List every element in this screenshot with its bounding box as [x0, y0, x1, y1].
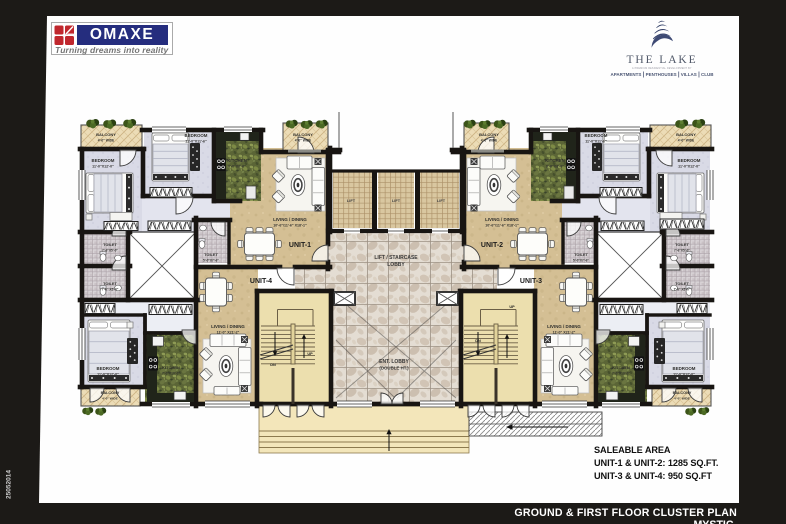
svg-text:LIFT: LIFT: [392, 198, 401, 203]
svg-text:8'-0"X8'-6": 8'-0"X8'-6": [546, 164, 564, 168]
svg-text:KITCHEN: KITCHEN: [227, 158, 247, 163]
svg-text:DN: DN: [475, 339, 481, 343]
svg-text:LIFT: LIFT: [437, 198, 446, 203]
svg-text:UNIT-3: UNIT-3: [520, 278, 542, 285]
svg-text:4'-0" WIDE: 4'-0" WIDE: [295, 138, 312, 142]
svg-text:BALCONY: BALCONY: [673, 391, 692, 395]
svg-text:LOBBY: LOBBY: [387, 262, 405, 268]
svg-text:LIFT / STAIRCASE: LIFT / STAIRCASE: [374, 255, 418, 261]
svg-text:KITCHEN: KITCHEN: [612, 365, 630, 370]
svg-text:BALCONY: BALCONY: [676, 132, 696, 137]
svg-text:4'-0" WIDE: 4'-0" WIDE: [98, 138, 115, 142]
svg-text:7'-0"X10'-0": 7'-0"X10'-0": [612, 371, 631, 375]
svg-text:7'-6"X5'-0": 7'-6"X5'-0": [674, 248, 690, 252]
svg-text:11'-0"X11'-6": 11'-0"X11'-6": [585, 139, 607, 143]
svg-text:KITCHEN: KITCHEN: [545, 158, 565, 163]
svg-text:(DOUBLE HT.): (DOUBLE HT.): [379, 366, 409, 371]
svg-text:4'-0" WIDE: 4'-0" WIDE: [102, 396, 118, 400]
svg-text:TOILET: TOILET: [103, 281, 117, 286]
svg-text:4'-0" WIDE: 4'-0" WIDE: [674, 396, 690, 400]
svg-text:KITCHEN: KITCHEN: [162, 365, 180, 370]
svg-text:7'-0"X10'-0": 7'-0"X10'-0": [162, 371, 181, 375]
svg-text:UP: UP: [509, 305, 515, 309]
svg-text:TOILET: TOILET: [204, 252, 218, 257]
svg-text:11'-0" X21'-2": 11'-0" X21'-2": [217, 330, 240, 334]
svg-text:LIFT: LIFT: [347, 198, 356, 203]
svg-text:11'-0"X12'-0": 11'-0"X12'-0": [97, 372, 119, 376]
svg-text:BEDROOM: BEDROOM: [97, 366, 120, 371]
svg-text:11'-0"X12'-0": 11'-0"X12'-0": [92, 164, 114, 168]
svg-text:BALCONY: BALCONY: [293, 132, 313, 137]
svg-text:TOILET: TOILET: [103, 242, 117, 247]
svg-text:BALCONY: BALCONY: [101, 391, 120, 395]
svg-text:LIVING / DINING: LIVING / DINING: [273, 217, 307, 222]
svg-text:UNIT-4: UNIT-4: [250, 278, 272, 285]
svg-text:DN: DN: [270, 363, 276, 367]
svg-text:TOILET: TOILET: [675, 281, 689, 286]
svg-text:4'-0" WIDE: 4'-0" WIDE: [678, 138, 695, 142]
svg-text:7'-6" X5'-0": 7'-6" X5'-0": [674, 287, 691, 291]
svg-text:5'-0"X7'-6": 5'-0"X7'-6": [203, 258, 219, 262]
svg-text:10'-6"/11'-6" X18'-1": 10'-6"/11'-6" X18'-1": [273, 223, 307, 227]
svg-text:11'-0"X11'-6": 11'-0"X11'-6": [185, 139, 207, 143]
svg-text:LIVING / DINING: LIVING / DINING: [485, 217, 519, 222]
svg-text:11'-0"X12'-0": 11'-0"X12'-0": [673, 372, 695, 376]
svg-text:BEDROOM: BEDROOM: [185, 133, 208, 138]
svg-text:11'-0"X12'-0": 11'-0"X12'-0": [678, 164, 700, 168]
svg-text:BEDROOM: BEDROOM: [673, 366, 696, 371]
svg-text:4'-0" WIDE: 4'-0" WIDE: [481, 138, 498, 142]
svg-text:UNIT-1: UNIT-1: [289, 242, 311, 249]
svg-text:BALCONY: BALCONY: [96, 132, 116, 137]
svg-text:LIVING / DINING: LIVING / DINING: [547, 324, 581, 329]
svg-text:ENT. LOBBY: ENT. LOBBY: [379, 359, 409, 365]
svg-text:8'-0"X8'-6": 8'-0"X8'-6": [228, 164, 246, 168]
svg-text:7'-6"X5'-0": 7'-6"X5'-0": [102, 248, 118, 252]
svg-text:LIVING / DINING: LIVING / DINING: [211, 324, 245, 329]
svg-text:TOILET: TOILET: [574, 252, 588, 257]
svg-text:UNIT-2: UNIT-2: [481, 242, 503, 249]
svg-text:UP: UP: [307, 352, 313, 356]
svg-text:10'-6"/11'-6" X18'-1": 10'-6"/11'-6" X18'-1": [485, 223, 519, 227]
svg-text:TOILET: TOILET: [675, 242, 689, 247]
svg-text:BALCONY: BALCONY: [479, 132, 499, 137]
svg-text:BEDROOM: BEDROOM: [92, 158, 115, 163]
svg-text:BEDROOM: BEDROOM: [678, 158, 701, 163]
svg-text:BEDROOM: BEDROOM: [585, 133, 608, 138]
svg-text:11'-0" X21'-2": 11'-0" X21'-2": [553, 330, 576, 334]
svg-text:5'-0"X7'-6": 5'-0"X7'-6": [573, 258, 589, 262]
svg-text:7'-6" X5'-0": 7'-6" X5'-0": [102, 287, 119, 291]
